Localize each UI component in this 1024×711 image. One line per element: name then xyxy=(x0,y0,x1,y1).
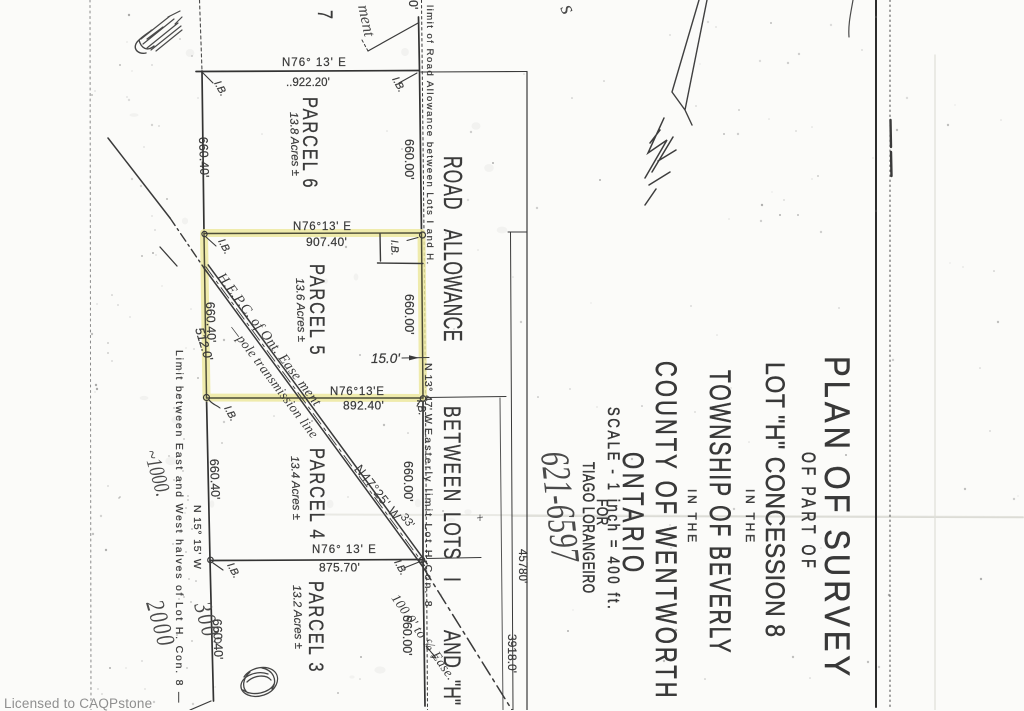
svg-text:TOWNSHIP OF BEVERLY: TOWNSHIP OF BEVERLY xyxy=(703,370,735,655)
svg-text:3918.0': 3918.0' xyxy=(505,634,519,673)
svg-text:13.4 Acres ±: 13.4 Acres ± xyxy=(288,456,302,520)
svg-text:907.40': 907.40' xyxy=(306,235,347,249)
svg-text:limit of Road Allowance betwee: limit of Road Allowance between Lots I a… xyxy=(424,5,435,266)
svg-text:660.00': 660.00' xyxy=(402,139,416,180)
svg-text:PARCEL 5: PARCEL 5 xyxy=(304,264,328,356)
svg-text:OF PART OF: OF PART OF xyxy=(797,452,819,571)
svg-text:ALLOWANCE: ALLOWANCE xyxy=(438,229,467,342)
svg-text:BETWEEN: BETWEEN xyxy=(438,406,464,503)
svg-text:PLAN OF SURVEY: PLAN OF SURVEY xyxy=(816,356,855,680)
svg-text:I.B.: I.B. xyxy=(414,399,428,416)
svg-text:~1000.: ~1000. xyxy=(139,447,176,499)
svg-text:I: I xyxy=(438,577,464,582)
svg-text:I.B.: I.B. xyxy=(221,404,239,424)
svg-text:7: 7 xyxy=(314,10,338,19)
svg-text:"H": "H" xyxy=(438,680,464,705)
svg-text:IN THE: IN THE xyxy=(685,489,699,545)
svg-text:I.B.: I.B. xyxy=(211,79,229,99)
svg-text:15.0': 15.0' xyxy=(371,351,400,366)
svg-text:s: s xyxy=(555,0,581,18)
svg-text:ment: ment xyxy=(354,3,379,39)
svg-text:N 15° 15' W: N 15° 15' W xyxy=(191,505,203,570)
svg-text:ROAD: ROAD xyxy=(438,156,467,211)
svg-text:Easterly limit Lot H Con. 8: Easterly limit Lot H Con. 8 xyxy=(422,428,434,609)
svg-text:N76°13' E: N76°13' E xyxy=(293,221,352,233)
svg-text:45780': 45780' xyxy=(516,549,528,583)
svg-text:Limit between East and West ha: Limit between East and West halves of Lo… xyxy=(173,350,185,704)
svg-text:PARCEL 4: PARCEL 4 xyxy=(304,448,328,540)
svg-text:13.2 Acres ±: 13.2 Acres ± xyxy=(290,585,304,649)
svg-text:I.B.: I.B. xyxy=(215,237,233,257)
svg-text:COUNTY OF WENTWORTH: COUNTY OF WENTWORTH xyxy=(649,361,683,701)
svg-text:N76° 13' E: N76° 13' E xyxy=(282,57,347,69)
svg-text:I.B.: I.B. xyxy=(224,561,242,581)
svg-text:13.6 Acres ±: 13.6 Acres ± xyxy=(293,278,307,342)
svg-text:N 13° 47' W: N 13° 47' W xyxy=(422,363,434,424)
svg-text:TIAGO LORANGEIRO: TIAGO LORANGEIRO xyxy=(578,462,596,594)
svg-text:I.B.: I.B. xyxy=(391,558,409,578)
svg-text:660.00': 660.00' xyxy=(401,461,415,502)
svg-text:I.B.: I.B. xyxy=(388,240,401,256)
svg-text:892.40': 892.40' xyxy=(343,399,384,413)
svg-text:660.40': 660.40' xyxy=(196,137,211,178)
svg-text:13.8 Acres ±: 13.8 Acres ± xyxy=(287,112,301,176)
svg-text:0': 0' xyxy=(406,0,420,9)
svg-text:LOT "H" CONCESSION 8: LOT "H" CONCESSION 8 xyxy=(760,362,789,638)
svg-text:I.B.: I.B. xyxy=(389,75,407,95)
svg-text:IN THE: IN THE xyxy=(743,489,757,545)
svg-text:875.70': 875.70' xyxy=(319,561,360,575)
svg-text:660.40': 660.40' xyxy=(207,459,222,500)
svg-text:N76°13'E: N76°13'E xyxy=(330,386,385,398)
svg-text:..922.20': ..922.20' xyxy=(286,77,330,89)
svg-text:660.00': 660.00' xyxy=(402,294,416,335)
svg-text:300°: 300° xyxy=(187,598,228,651)
svg-text:N76° 13' E: N76° 13' E xyxy=(312,544,377,556)
